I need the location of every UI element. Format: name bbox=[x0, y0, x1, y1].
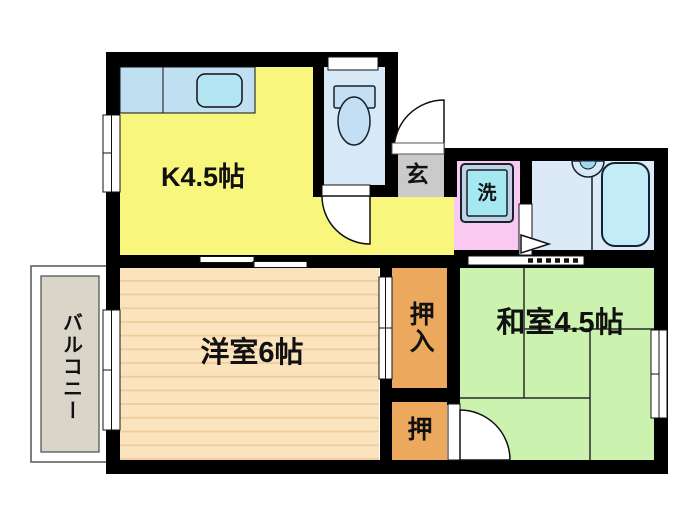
entrance-door bbox=[392, 100, 444, 154]
entrance-label: 玄 bbox=[406, 162, 429, 186]
bath-threshold bbox=[468, 256, 584, 265]
western-room-label: 洋室6帖 bbox=[200, 338, 303, 368]
sliding-door-closet bbox=[379, 277, 392, 379]
kitchen-label: K4.5帖 bbox=[161, 163, 245, 191]
japanese-room-label: 和室4.5帖 bbox=[496, 308, 623, 338]
bathtub-icon bbox=[602, 163, 649, 246]
floor-plan-canvas bbox=[0, 0, 700, 525]
balcony-label: バルコニー bbox=[60, 312, 81, 422]
floor-plan: K4.5帖 玄 洗 洋室6帖 和室4.5帖 押入 押 バルコニー bbox=[0, 0, 700, 525]
japanese-door-leaf bbox=[448, 404, 460, 460]
western-room-window bbox=[103, 310, 120, 430]
toilet-window bbox=[328, 57, 378, 70]
closet-large-label: 押入 bbox=[407, 301, 433, 355]
closet-small-label: 押 bbox=[407, 417, 432, 443]
kitchen-counter bbox=[120, 67, 255, 113]
kitchen-window bbox=[103, 115, 120, 192]
toilet-door-leaf bbox=[322, 185, 370, 196]
japanese-room-window bbox=[651, 330, 667, 418]
toilet-icon bbox=[338, 97, 370, 145]
entrance-threshold bbox=[392, 143, 444, 154]
laundry-label: 洗 bbox=[477, 184, 496, 204]
kitchen-sink-icon bbox=[197, 74, 242, 107]
